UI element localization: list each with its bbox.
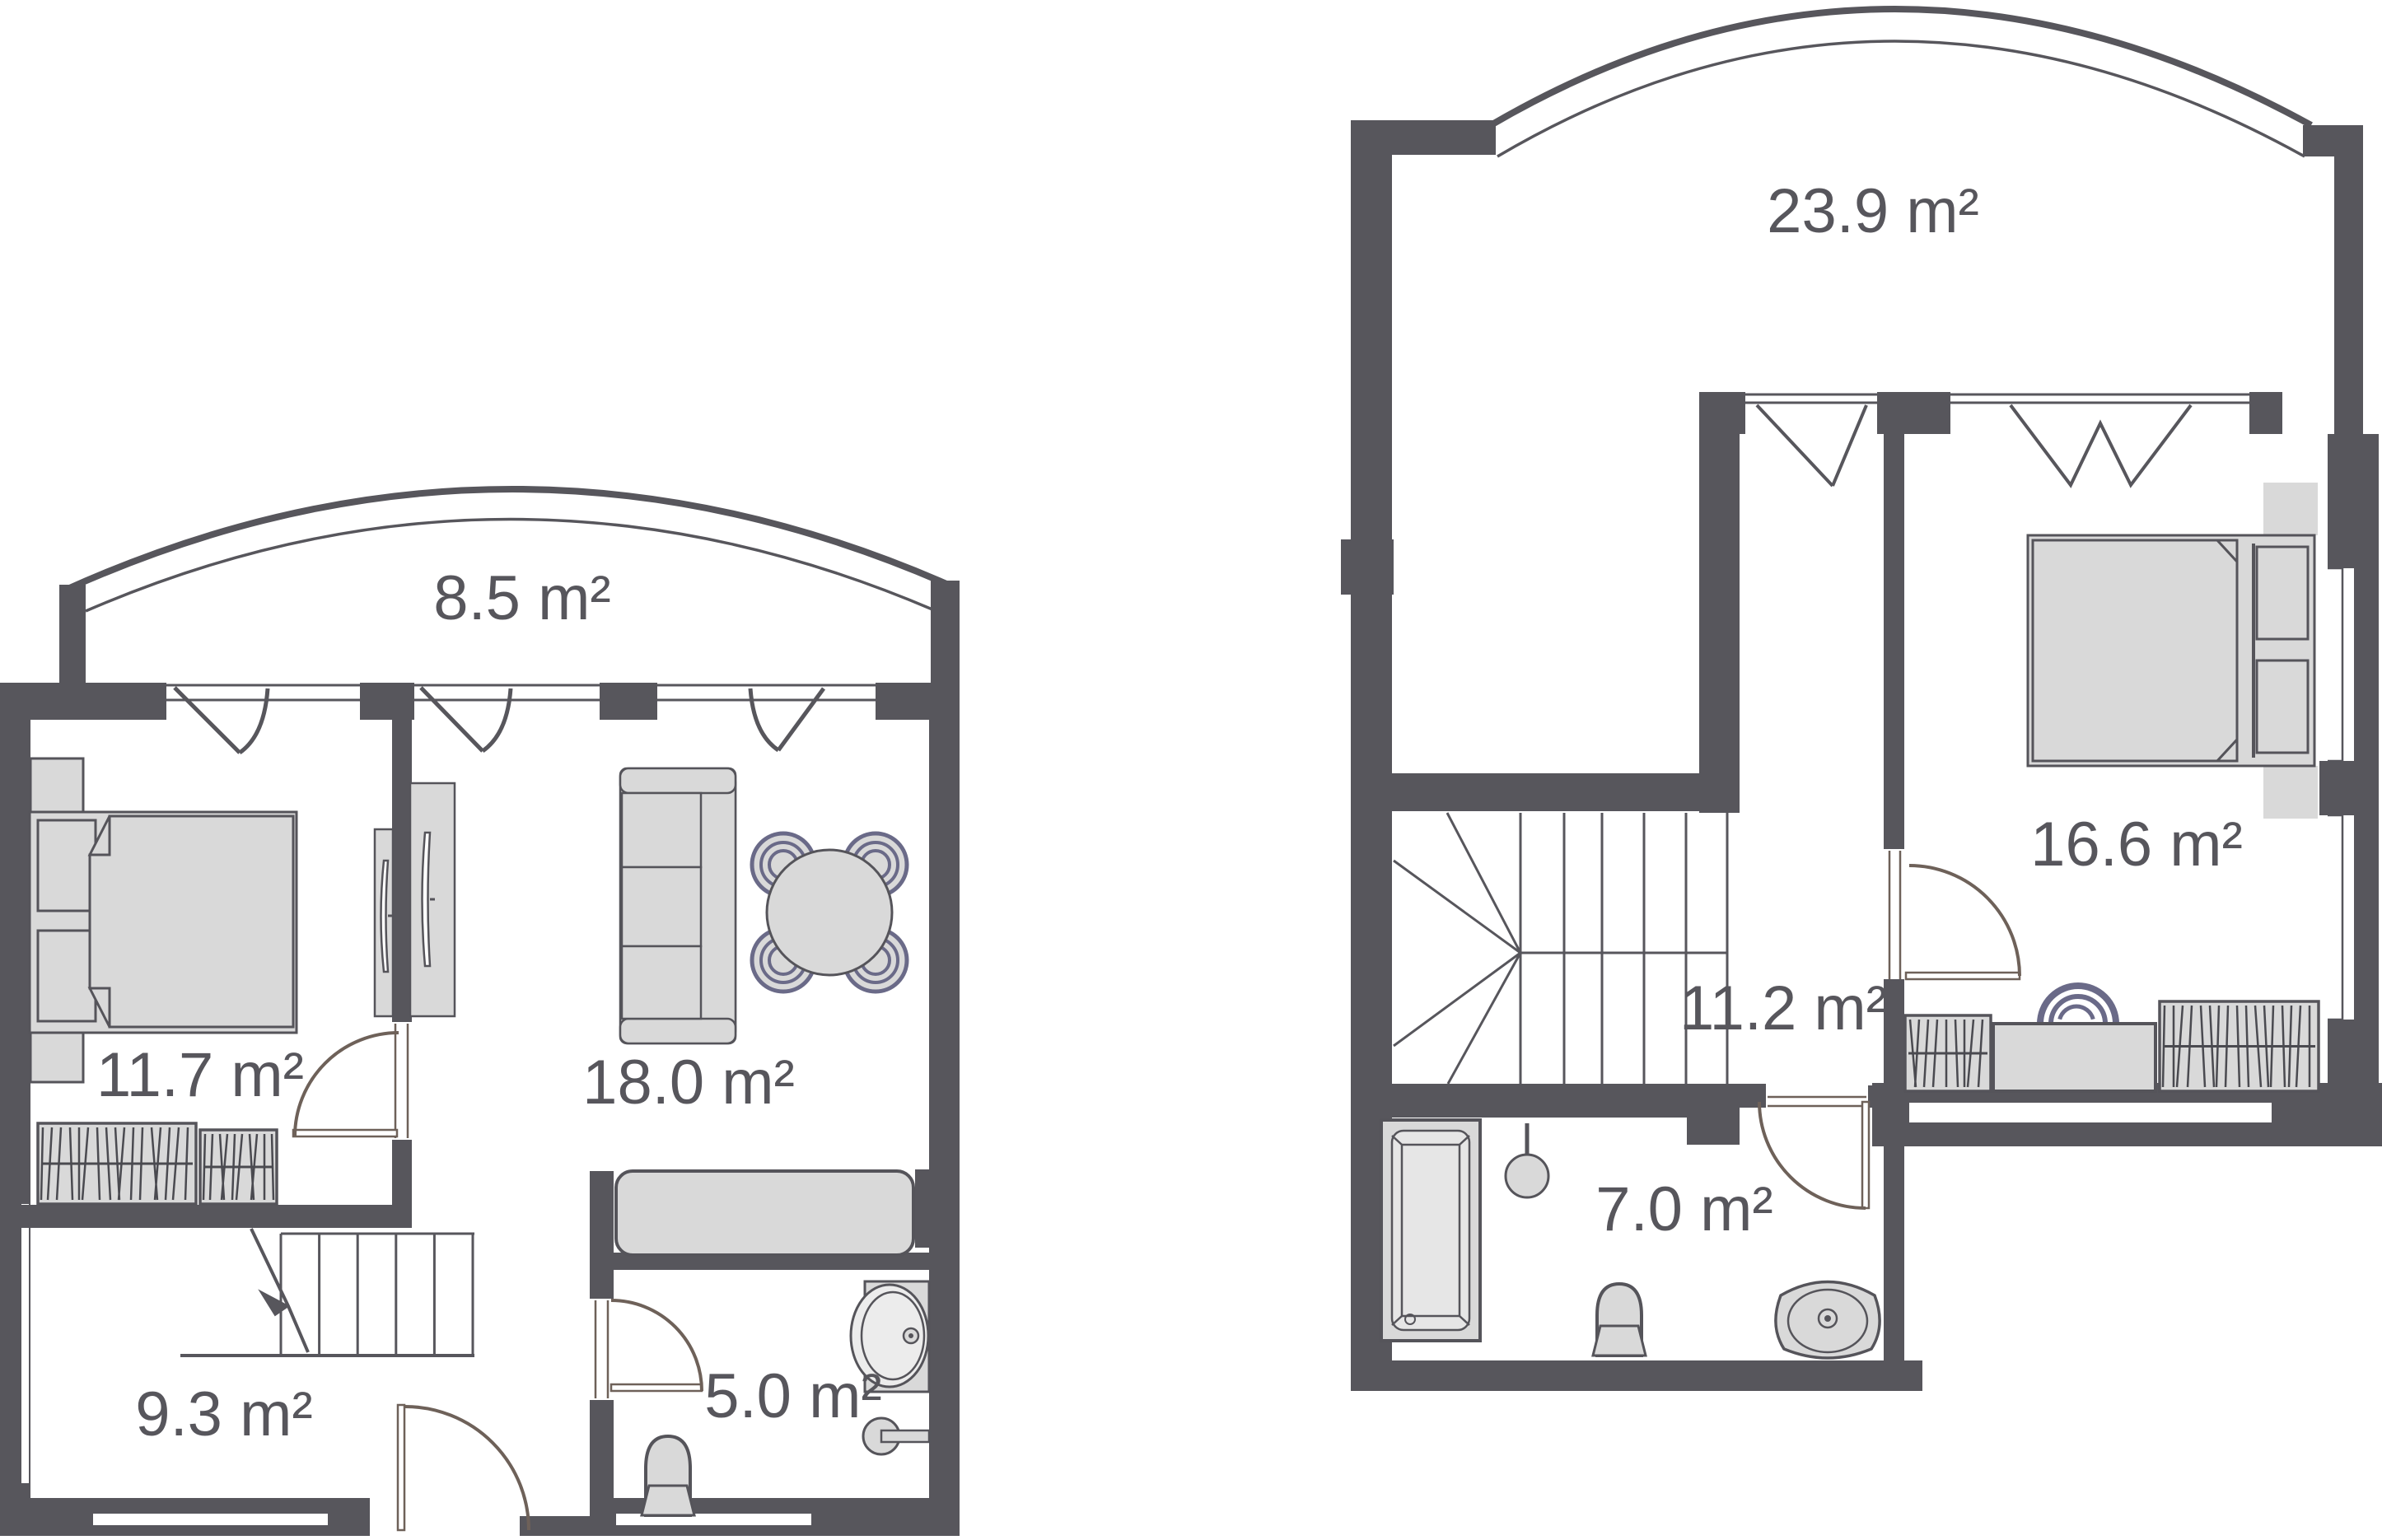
svg-text:7.0 m²: 7.0 m² bbox=[1595, 1174, 1772, 1244]
svg-text:8.5 m²: 8.5 m² bbox=[433, 563, 610, 633]
svg-text:11.7 m²: 11.7 m² bbox=[96, 1040, 304, 1110]
svg-text:16.6 m²: 16.6 m² bbox=[2030, 810, 2243, 880]
svg-text:9.3 m²: 9.3 m² bbox=[135, 1379, 312, 1449]
svg-text:18.0 m²: 18.0 m² bbox=[582, 1048, 795, 1118]
svg-text:11.2 m²: 11.2 m² bbox=[1679, 973, 1887, 1043]
svg-text:23.9 m²: 23.9 m² bbox=[1767, 176, 1979, 246]
svg-text:5.0 m²: 5.0 m² bbox=[704, 1361, 881, 1431]
